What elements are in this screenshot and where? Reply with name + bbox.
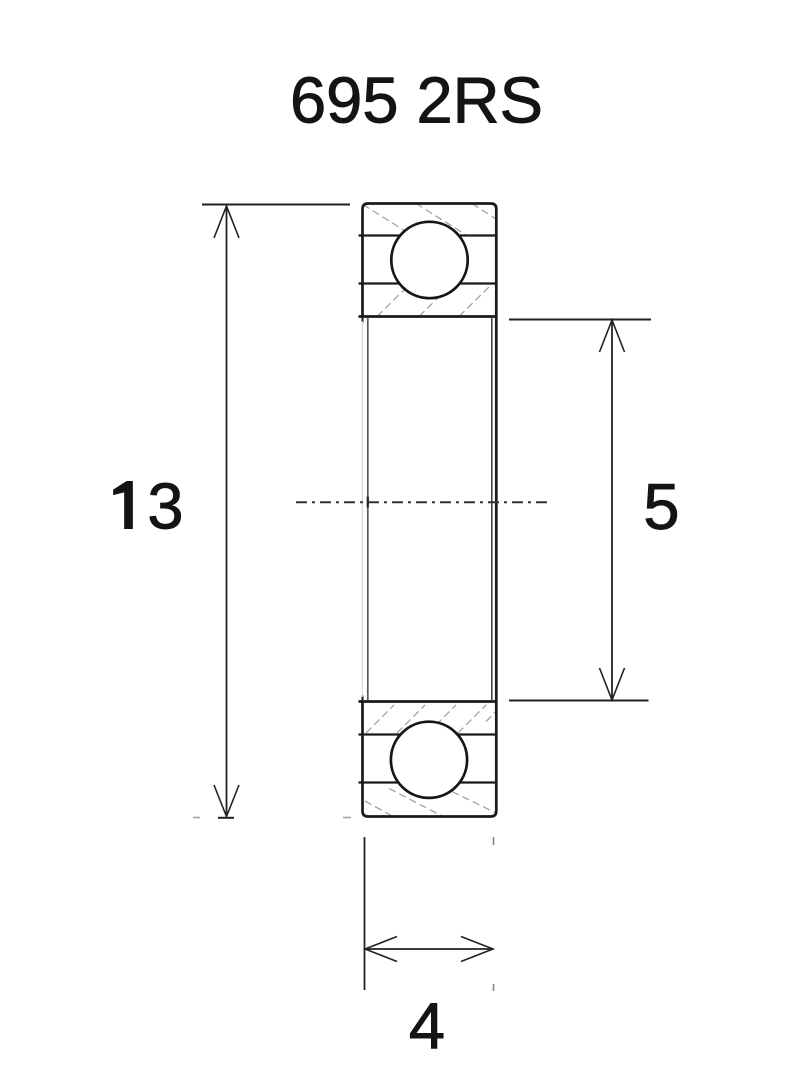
svg-text:4: 4	[409, 989, 445, 1062]
svg-text:5: 5	[643, 470, 679, 543]
svg-text:695 2RS: 695 2RS	[290, 64, 543, 137]
svg-text:3: 3	[147, 470, 183, 543]
